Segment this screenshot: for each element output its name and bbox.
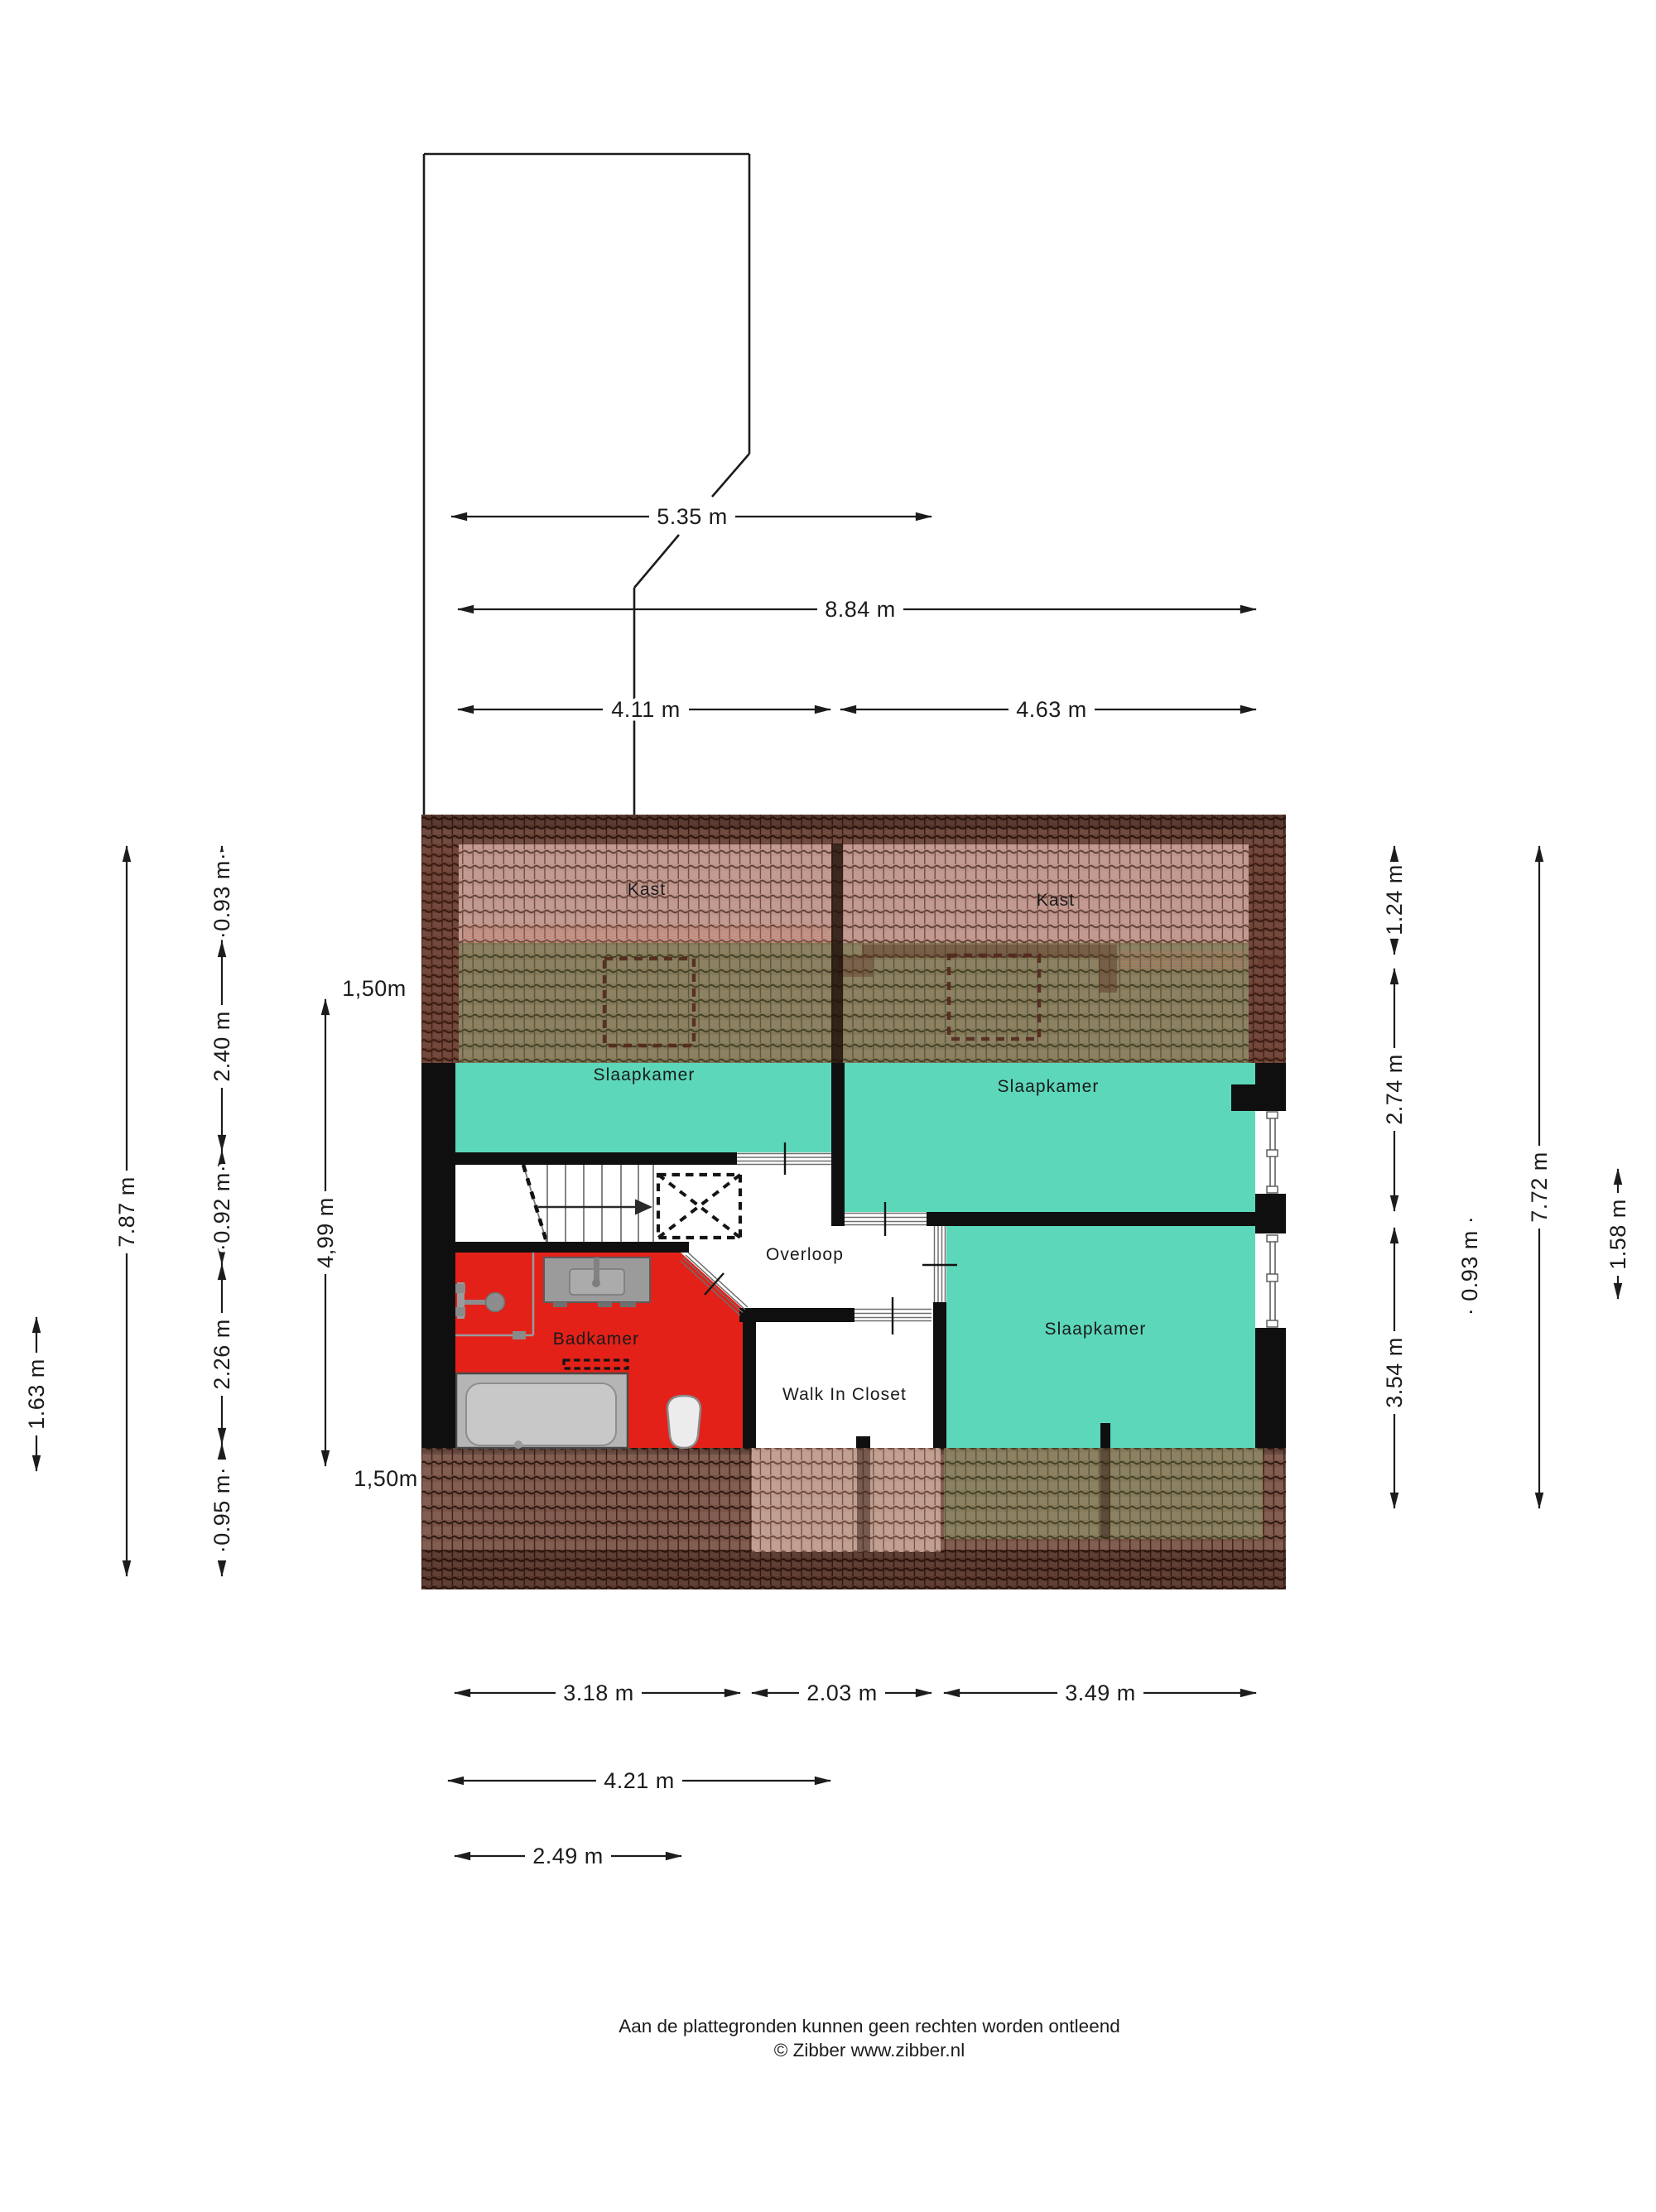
svg-text:2.74 m: 2.74 m	[1382, 1054, 1407, 1125]
svg-text:2.40 m: 2.40 m	[209, 1011, 234, 1082]
svg-text:Kast: Kast	[628, 880, 666, 899]
svg-text:1.63 m: 1.63 m	[24, 1358, 49, 1430]
svg-text:4.21 m: 4.21 m	[604, 1768, 675, 1793]
svg-text:2.49 m: 2.49 m	[532, 1844, 604, 1868]
svg-text:4.11 m: 4.11 m	[611, 697, 681, 722]
svg-text:·0.92 m·: ·0.92 m·	[209, 1165, 234, 1252]
svg-text:· 0.93 m ·: · 0.93 m ·	[1457, 1216, 1482, 1316]
svg-text:© Zibber www.zibber.nl: © Zibber www.zibber.nl	[774, 2040, 965, 2061]
svg-text:3.49 m: 3.49 m	[1065, 1681, 1136, 1705]
svg-text:7.72 m: 7.72 m	[1527, 1152, 1552, 1223]
svg-text:8.84 m: 8.84 m	[825, 597, 896, 622]
svg-text:1,50m: 1,50m	[342, 976, 407, 1001]
svg-text:1.24 m: 1.24 m	[1382, 864, 1407, 935]
svg-text:7.87 m: 7.87 m	[114, 1176, 139, 1248]
svg-text:Badkamer: Badkamer	[553, 1330, 640, 1349]
svg-text:Aan de plattegronden kunnen ge: Aan de plattegronden kunnen geen rechten…	[619, 2016, 1119, 2036]
svg-text:3.18 m: 3.18 m	[563, 1681, 634, 1705]
svg-text:3.54 m: 3.54 m	[1382, 1337, 1407, 1408]
svg-text:·0.95 m·: ·0.95 m·	[209, 1467, 234, 1554]
svg-text:Slaapkamer: Slaapkamer	[593, 1065, 695, 1084]
svg-text:4.63 m: 4.63 m	[1016, 697, 1087, 722]
svg-text:2.26 m: 2.26 m	[209, 1319, 234, 1390]
svg-text:·0.93 m·: ·0.93 m·	[209, 853, 234, 940]
svg-text:1,50m: 1,50m	[354, 1466, 418, 1491]
svg-text:2.03 m: 2.03 m	[806, 1681, 878, 1705]
svg-text:Walk In Closet: Walk In Closet	[782, 1385, 907, 1404]
svg-text:Slaapkamer: Slaapkamer	[1044, 1320, 1146, 1339]
svg-text:5.35 m: 5.35 m	[657, 504, 728, 529]
svg-text:Overloop: Overloop	[766, 1245, 844, 1264]
svg-text:Slaapkamer: Slaapkamer	[997, 1077, 1099, 1096]
svg-text:Kast: Kast	[1037, 891, 1075, 910]
svg-text:1.58 m: 1.58 m	[1605, 1199, 1630, 1270]
svg-text:4,99 m: 4,99 m	[313, 1197, 338, 1268]
